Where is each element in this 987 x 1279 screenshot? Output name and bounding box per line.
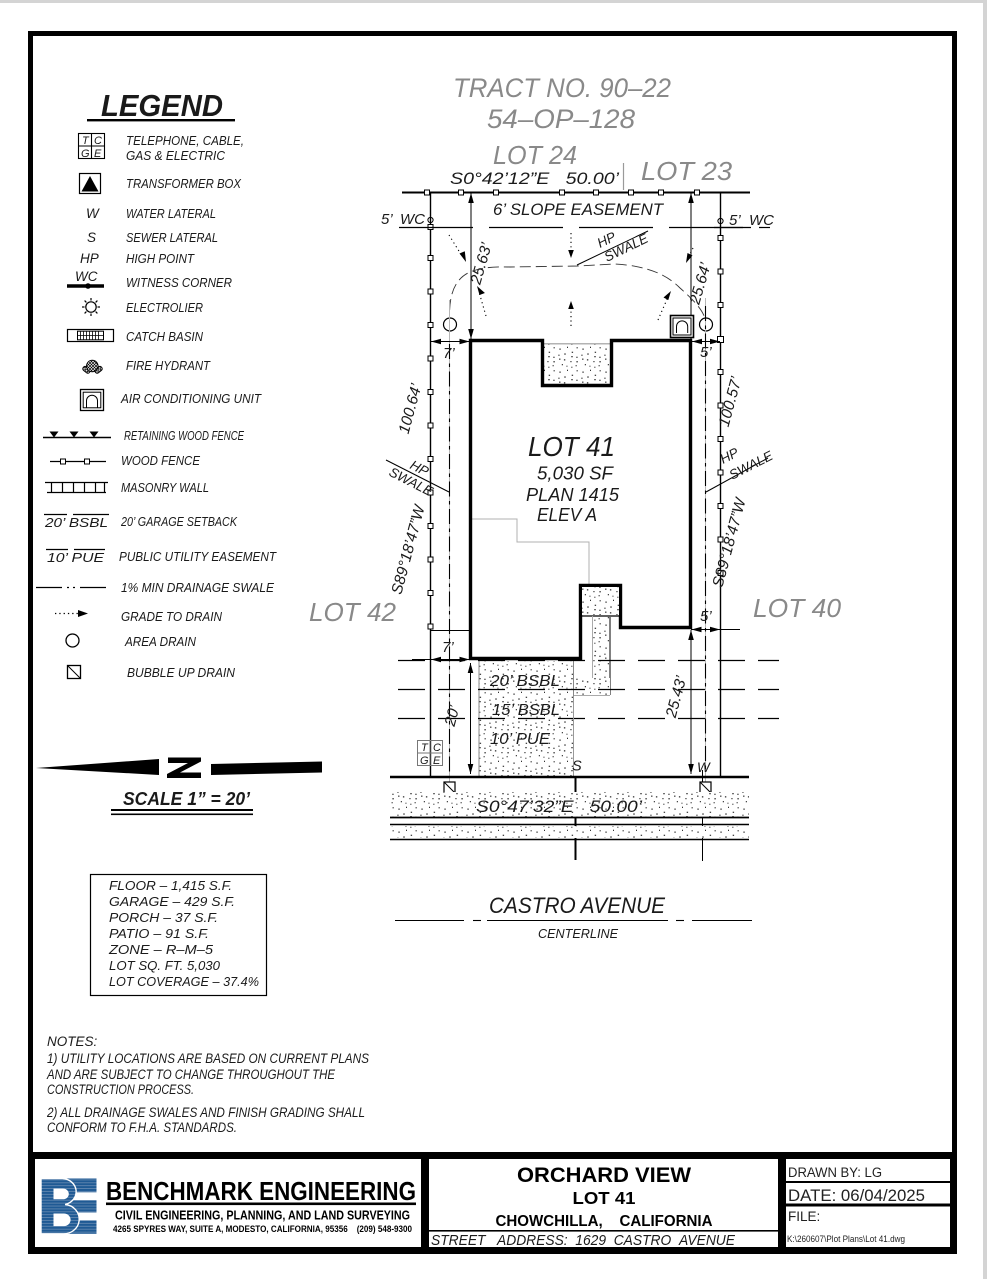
svg-text:C: C <box>433 742 441 754</box>
svg-text:5’: 5’ <box>700 608 712 625</box>
svg-text:15’ BSBL: 15’ BSBL <box>492 702 560 719</box>
svg-text:WC: WC <box>75 269 98 284</box>
svg-text:CHOWCHILLA, CALIFORNIA: CHOWCHILLA, CALIFORNIA <box>496 1213 713 1230</box>
svg-text:E: E <box>433 755 441 767</box>
svg-text:GAS & ELECTRIC: GAS & ELECTRIC <box>126 148 226 163</box>
svg-text:W: W <box>86 206 100 221</box>
svg-text:LOT SQ. FT. 5,030: LOT SQ. FT. 5,030 <box>109 959 220 973</box>
svg-text:PLAN 1415: PLAN 1415 <box>526 485 620 505</box>
svg-text:LEGEND: LEGEND <box>101 88 223 123</box>
svg-text:ELEV A: ELEV A <box>537 505 597 525</box>
svg-text:CENTERLINE: CENTERLINE <box>538 926 618 941</box>
svg-text:TRACT NO. 90–22: TRACT NO. 90–22 <box>453 73 671 103</box>
svg-text:TRANSFORMER BOX: TRANSFORMER BOX <box>126 176 242 191</box>
svg-text:20’ BSBL: 20’ BSBL <box>44 515 108 530</box>
svg-text:WC: WC <box>400 211 425 228</box>
svg-text:WATER LATERAL: WATER LATERAL <box>126 206 216 221</box>
svg-text:S: S <box>572 759 582 775</box>
svg-text:6’ SLOPE EASEMENT: 6’ SLOPE EASEMENT <box>493 201 665 219</box>
svg-text:HIGH POINT: HIGH POINT <box>126 251 195 266</box>
svg-text:G: G <box>420 755 429 767</box>
svg-text:GRADE TO DRAIN: GRADE TO DRAIN <box>121 609 223 624</box>
svg-text:WC: WC <box>749 212 774 229</box>
svg-text:ZONE – R–M–5: ZONE – R–M–5 <box>108 943 214 957</box>
svg-text:5’: 5’ <box>700 344 712 361</box>
svg-text:10’ PUE: 10’ PUE <box>47 550 104 565</box>
svg-text:CASTRO AVENUE: CASTRO AVENUE <box>489 893 665 918</box>
svg-text:LOT COVERAGE – 37.4%: LOT COVERAGE – 37.4% <box>109 975 259 989</box>
svg-text:AND ARE SUBJECT TO CHANGE: AND ARE SUBJECT TO CHANGE THROUGHOUT THE <box>46 1067 336 1082</box>
svg-text:G: G <box>81 148 90 160</box>
svg-text:20’ GARAGE SETBACK: 20’ GARAGE SETBACK <box>120 514 238 529</box>
svg-text:PUBLIC UTILITY EASEMENT: PUBLIC UTILITY EASEMENT <box>119 549 277 564</box>
svg-text:FIRE HYDRANT: FIRE HYDRANT <box>126 358 211 373</box>
svg-text:1% MIN DRAINAGE SWALE: 1% MIN DRAINAGE SWALE <box>121 580 274 595</box>
svg-text:RETAINING WOOD FENCE: RETAINING WOOD FENCE <box>124 428 244 443</box>
svg-text:ORCHARD VIEW: ORCHARD VIEW <box>517 1164 691 1187</box>
svg-text:K:\260607\Plot Plans\Lot 41.dw: K:\260607\Plot Plans\Lot 41.dwg <box>787 1234 905 1244</box>
svg-text:HP: HP <box>80 251 99 266</box>
svg-text:SCALE 1” = 20’: SCALE 1” = 20’ <box>123 789 251 809</box>
svg-text:FILE:: FILE: <box>788 1209 820 1224</box>
svg-text:CONSTRUCTION PROCESS.: CONSTRUCTION PROCESS. <box>47 1082 194 1097</box>
svg-text:5,030 SF: 5,030 SF <box>537 464 614 484</box>
svg-text:S0°42’12”E 50.00’: S0°42’12”E 50.00’ <box>450 170 619 188</box>
svg-text:S: S <box>87 230 96 245</box>
svg-text:W: W <box>697 760 711 775</box>
svg-text:5’: 5’ <box>729 212 741 229</box>
svg-text:WITNESS CORNER: WITNESS CORNER <box>126 275 232 290</box>
svg-text:4265 SPYRES WAY, SUITE A, MODE: 4265 SPYRES WAY, SUITE A, MODESTO, CALIF… <box>113 1224 412 1235</box>
svg-text:BENCHMARK ENGINEERING: BENCHMARK ENGINEERING <box>106 1176 416 1206</box>
svg-text:NOTES:: NOTES: <box>47 1034 98 1049</box>
svg-text:7’: 7’ <box>443 345 455 362</box>
svg-text:AIR CONDITIONING UNIT: AIR CONDITIONING UNIT <box>120 391 262 406</box>
svg-text:1) UTILITY LOCATIONS ARE B: 1) UTILITY LOCATIONS ARE BASED ON CURREN… <box>47 1051 369 1066</box>
svg-text:2) ALL DRAINAGE SWALES AND: 2) ALL DRAINAGE SWALES AND FINISH GRADIN… <box>46 1105 365 1120</box>
svg-text:LOT 41: LOT 41 <box>528 431 615 462</box>
svg-text:SEWER LATERAL: SEWER LATERAL <box>126 230 218 245</box>
svg-text:GARAGE – 429 S.F.: GARAGE – 429 S.F. <box>109 895 235 909</box>
svg-text:20’ BSBL: 20’ BSBL <box>489 673 560 690</box>
svg-text:E: E <box>94 148 102 160</box>
svg-text:CIVIL ENGINEERING, PLANNING, A: CIVIL ENGINEERING, PLANNING, AND LAND SU… <box>115 1208 410 1223</box>
svg-text:MASONRY WALL: MASONRY WALL <box>121 480 209 495</box>
svg-text:PORCH – 37 S.F.: PORCH – 37 S.F. <box>109 911 218 925</box>
svg-text:PATIO – 91 S.F.: PATIO – 91 S.F. <box>109 927 209 941</box>
svg-text:LOT 40: LOT 40 <box>753 593 842 623</box>
svg-text:54–OP–128: 54–OP–128 <box>487 104 635 134</box>
svg-text:ELECTROLIER: ELECTROLIER <box>126 300 203 315</box>
svg-text:DATE: 06/04/2025: DATE: 06/04/2025 <box>788 1187 925 1205</box>
svg-text:10’ PUE: 10’ PUE <box>490 731 551 748</box>
svg-text:5’: 5’ <box>381 211 393 228</box>
svg-text:FLOOR – 1,415 S.F.: FLOOR – 1,415 S.F. <box>109 879 232 893</box>
svg-text:DRAWN BY: LG: DRAWN BY: LG <box>788 1165 882 1180</box>
svg-text:LOT 42: LOT 42 <box>309 597 397 627</box>
svg-text:LOT 41: LOT 41 <box>573 1188 636 1208</box>
svg-text:STREET ADDRESS: 1629 CASTR: STREET ADDRESS: 1629 CASTRO AVENUE <box>431 1232 736 1249</box>
svg-text:WOOD FENCE: WOOD FENCE <box>121 453 200 468</box>
svg-text:S0°47’32”E 50.00’: S0°47’32”E 50.00’ <box>476 797 642 816</box>
svg-text:CONFORM TO F.H.A. STANDARDS: CONFORM TO F.H.A. STANDARDS. <box>47 1120 237 1135</box>
svg-text:7’: 7’ <box>442 639 454 656</box>
svg-text:TELEPHONE, CABLE,: TELEPHONE, CABLE, <box>126 133 244 148</box>
svg-text:CATCH BASIN: CATCH BASIN <box>126 329 204 344</box>
svg-text:C: C <box>94 135 102 147</box>
svg-text:BUBBLE UP DRAIN: BUBBLE UP DRAIN <box>127 665 236 680</box>
svg-text:LOT 24: LOT 24 <box>493 140 577 170</box>
svg-text:AREA DRAIN: AREA DRAIN <box>124 634 196 649</box>
svg-text:LOT 23: LOT 23 <box>641 156 733 186</box>
